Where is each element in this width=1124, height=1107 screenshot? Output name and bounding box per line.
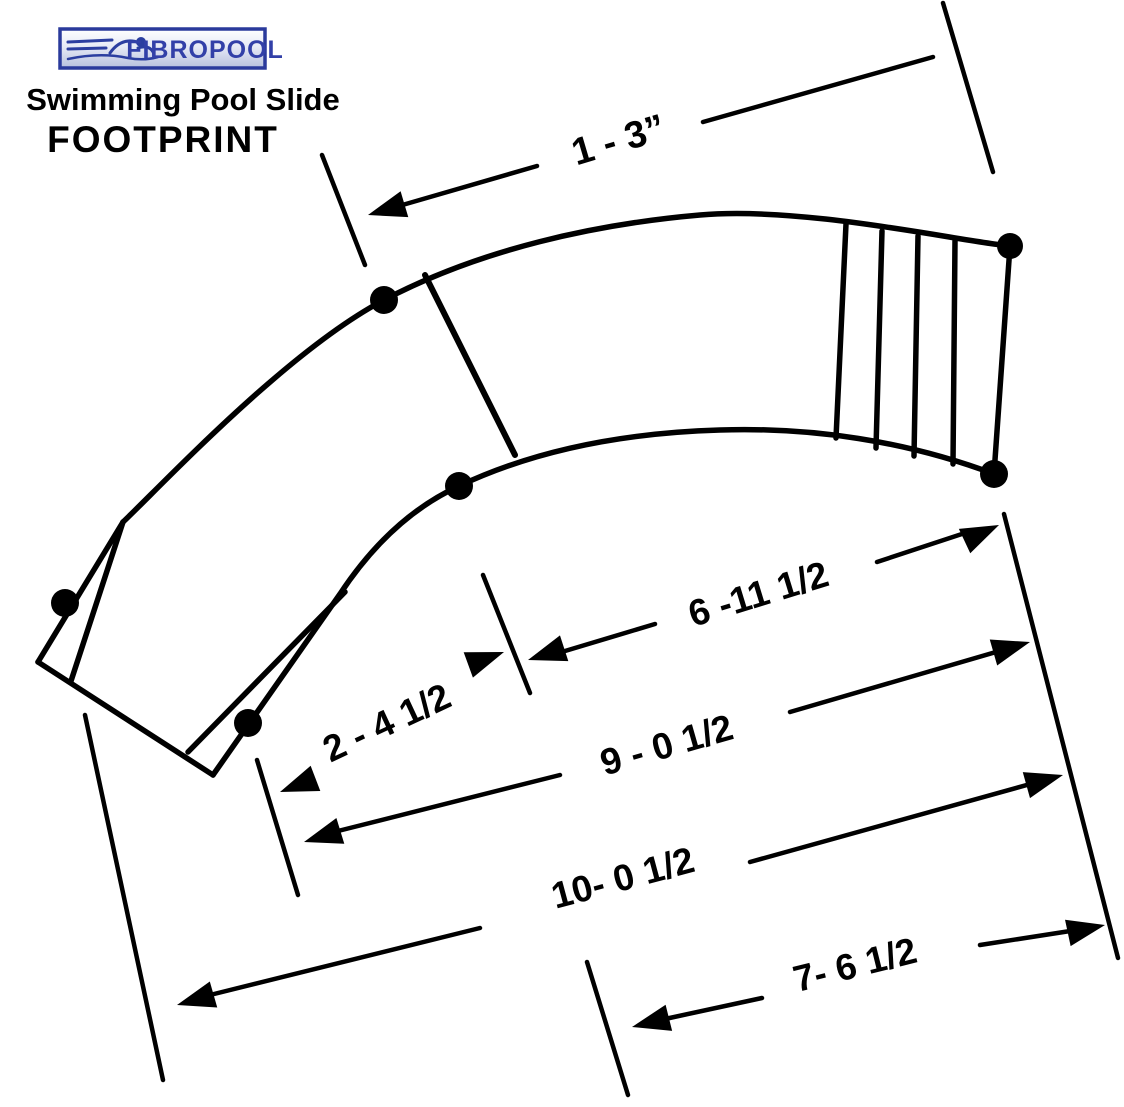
ladder-rung [914, 236, 918, 456]
arrowhead [990, 629, 1034, 665]
logo-text: FIBROPOOL [126, 36, 284, 64]
exit-flare-outer-edge [38, 522, 123, 662]
dim-label-top-width: 1 - 3” [567, 107, 670, 174]
dimension-arrowheads [173, 191, 1108, 1040]
slide-footprint-drawing: FIBROPOOL Swimming Pool Slide FOOTPRINT [0, 0, 1124, 1107]
diagram-canvas: FIBROPOOL Swimming Pool Slide FOOTPRINT [0, 0, 1124, 1107]
anchor-dot [51, 589, 79, 617]
dim-line-mid-run [790, 645, 1020, 712]
arrowhead [173, 982, 217, 1018]
dim-label-exit-width: 2 - 4 1/2 [317, 675, 457, 770]
slide-inner-edge [213, 430, 994, 775]
anchor-dot [997, 233, 1023, 259]
slide-section-joint [425, 275, 515, 455]
arrowhead [364, 191, 408, 228]
arrowhead [1065, 912, 1108, 946]
page-title: Swimming Pool Slide [26, 82, 339, 117]
ladder-rung [953, 241, 955, 464]
anchor-dot [980, 460, 1008, 488]
logo: FIBROPOOL [60, 29, 284, 68]
dim-line-lower-run [665, 998, 762, 1019]
exit-end-edge [38, 662, 213, 775]
dim-line-total-run [210, 928, 480, 995]
anchor-dot [370, 286, 398, 314]
extension-line-far-left [85, 715, 163, 1080]
dim-label-total-run: 10- 0 1/2 [547, 839, 699, 916]
exit-flare-overlap-right [188, 592, 345, 752]
arrowhead [275, 766, 320, 805]
ladder-rung [836, 224, 846, 438]
dim-line-total-run [750, 778, 1052, 862]
dim-label-lower-run: 7- 6 1/2 [789, 930, 921, 1000]
dim-line-mid-run [330, 775, 560, 833]
dim-label-upper-run: 6 -11 1/2 [683, 553, 833, 634]
anchor-dot [445, 472, 473, 500]
arrowhead [629, 1005, 672, 1040]
dim-line-top-width [392, 166, 537, 208]
page-subtitle: FOOTPRINT [47, 119, 279, 160]
extension-line-top-right [943, 3, 993, 172]
ladder-end-edge [994, 246, 1010, 474]
dim-line-top-width [703, 57, 933, 122]
arrowhead [1023, 762, 1067, 798]
extension-line-exit [257, 760, 298, 895]
extension-line-top-left [322, 155, 365, 265]
dim-line-upper-run [877, 532, 968, 562]
extension-line-bottom-mid [587, 962, 628, 1095]
ladder-rung [876, 231, 882, 448]
arrowhead [524, 635, 568, 672]
arrowhead [959, 513, 1005, 554]
arrowhead [464, 639, 509, 677]
anchor-dot [234, 709, 262, 737]
extension-line-mid [483, 575, 530, 693]
dim-label-mid-run: 9 - 0 1/2 [596, 707, 738, 784]
extension-line-far-right [1004, 514, 1118, 958]
arrowhead [300, 818, 344, 855]
